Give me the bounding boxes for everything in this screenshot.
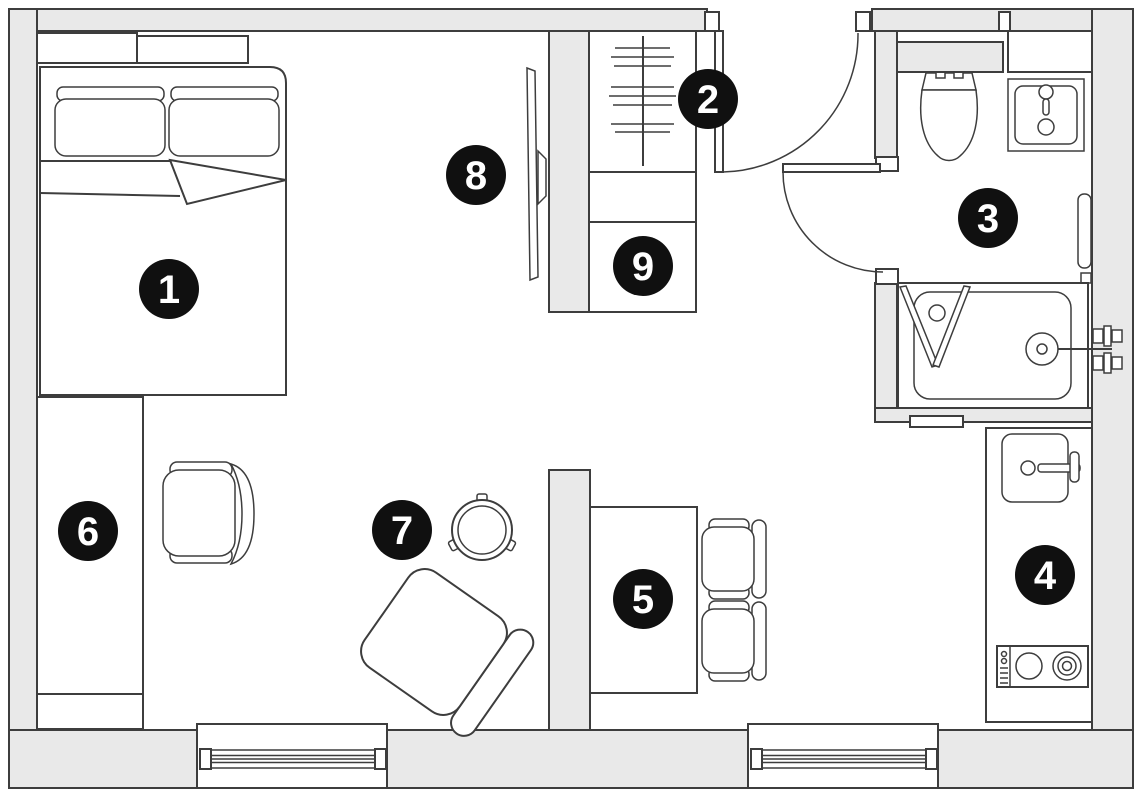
shower-valve (1093, 356, 1103, 370)
stove-burner (1016, 653, 1042, 679)
kitchen-sink-drain (1021, 461, 1035, 475)
stove-knob (1002, 652, 1007, 657)
chair-seat (702, 609, 754, 673)
marker-7: 7 (372, 500, 432, 560)
tv-mount-bracket (538, 151, 546, 204)
marker-8: 8 (446, 145, 506, 205)
marker-3-label: 3 (977, 197, 999, 241)
toilet-bowl (921, 90, 978, 161)
dining-chair (702, 519, 766, 599)
entry-door-jamb-left (705, 12, 719, 31)
side-table-inner (458, 506, 506, 554)
marker-2-label: 2 (697, 78, 719, 122)
headboard-shelf-right (137, 36, 248, 63)
radiator (1078, 194, 1091, 268)
bottom-wall-middle (387, 730, 748, 788)
entry-door-jamb-right (856, 12, 870, 31)
window-end-cap (926, 749, 937, 769)
headboard-shelf-left (37, 33, 137, 63)
wall-niche (1008, 31, 1092, 72)
marker-9: 9 (613, 236, 673, 296)
marker-5: 5 (613, 569, 673, 629)
floor-plan: 1 2 3 4 5 6 7 8 (0, 0, 1139, 800)
side-table (448, 494, 516, 560)
marker-9-label: 9 (632, 245, 654, 289)
partition-wall (549, 470, 590, 730)
marker-6-label: 6 (77, 510, 99, 554)
marker-7-label: 7 (391, 509, 413, 553)
window-right (748, 724, 938, 788)
shower-valve (1104, 353, 1111, 373)
shower-head-center (1037, 344, 1047, 354)
bottom-wall-right (938, 730, 1133, 788)
window-end-cap (375, 749, 386, 769)
right-wall (1092, 9, 1133, 788)
entry-door-swing-arc (723, 33, 858, 172)
stove-burner-ring (1063, 662, 1072, 671)
marker-3: 3 (958, 188, 1018, 248)
bathroom-wall-lower (875, 283, 897, 420)
niche-jamb (999, 12, 1010, 31)
bathroom-wall-upper (875, 31, 897, 158)
bathtub (898, 283, 1122, 408)
headboard-shelf (37, 33, 248, 63)
desk (37, 397, 143, 729)
pillow (55, 99, 165, 156)
bed (40, 67, 286, 395)
bathtub-drain (929, 305, 945, 321)
marker-1-label: 1 (158, 268, 180, 312)
window-end-cap (751, 749, 762, 769)
marker-5-label: 5 (632, 578, 654, 622)
tv (527, 68, 546, 280)
chair-seat (163, 470, 235, 556)
desk-shelf (37, 694, 143, 729)
bathroom-door-swing-arc (783, 172, 883, 272)
shower-valve (1112, 330, 1122, 342)
tv-wall (549, 31, 590, 312)
marker-4: 4 (1015, 545, 1075, 605)
window-end-cap (200, 749, 211, 769)
bathroom-sink (1008, 79, 1084, 151)
sink-faucet (1039, 85, 1053, 99)
stove (997, 646, 1088, 687)
bathroom-door (783, 164, 883, 272)
bath-kitchen-divider (875, 408, 1092, 422)
marker-1: 1 (139, 259, 199, 319)
shower-valve (1093, 329, 1103, 343)
kitchen-faucet-handle (1070, 452, 1079, 482)
window-left (197, 724, 387, 788)
floor-plan-canvas: 1 2 3 4 5 6 7 8 (0, 0, 1139, 800)
chair-seat (702, 527, 754, 591)
marker-8-label: 8 (465, 154, 487, 198)
dining-chair (702, 601, 766, 681)
pillow (169, 99, 279, 156)
desk-chair (163, 462, 254, 564)
tv-panel (527, 68, 538, 280)
sink-drain (1038, 119, 1054, 135)
bathroom-top-band (897, 42, 1003, 72)
toilet (921, 73, 978, 161)
top-wall-left (9, 9, 707, 31)
marker-6: 6 (58, 501, 118, 561)
marker-2: 2 (678, 69, 738, 129)
left-wall (9, 9, 37, 788)
toilet-tank (922, 73, 976, 90)
wall-notch (910, 416, 963, 427)
armchair (351, 558, 538, 741)
shower-valve (1112, 357, 1122, 369)
stove-knob (1002, 659, 1007, 664)
bottom-wall-left (9, 730, 197, 788)
wall-connector (1081, 273, 1091, 283)
shower-valve (1104, 326, 1111, 346)
marker-4-label: 4 (1034, 554, 1057, 598)
bathroom-door-leaf (783, 164, 880, 172)
sink-faucet-stem (1043, 99, 1049, 115)
